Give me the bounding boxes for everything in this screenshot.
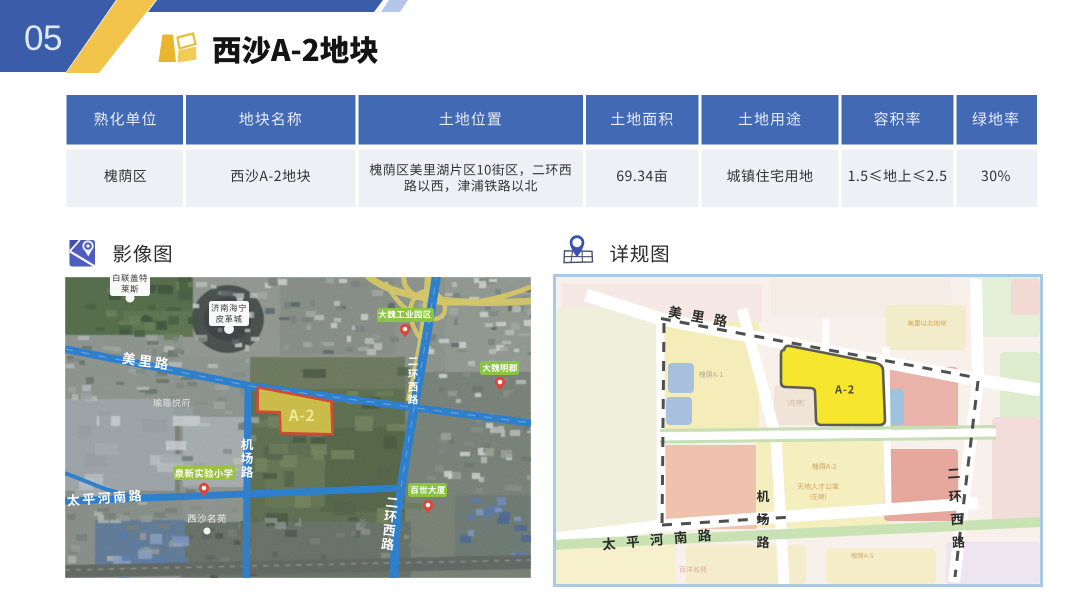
svg-text:05: 05	[24, 19, 62, 58]
